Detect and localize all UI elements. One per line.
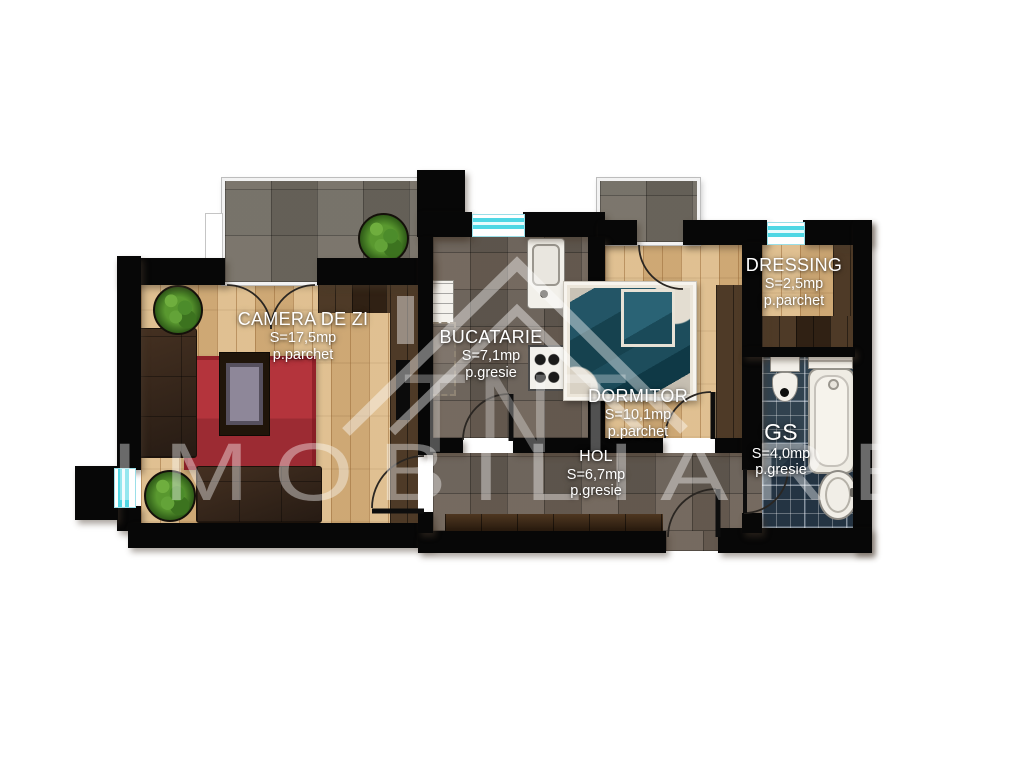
kitchen-window: [472, 214, 525, 237]
wall: [523, 212, 605, 237]
potted-plant: [144, 470, 196, 522]
room-name: DORMITOR: [588, 386, 688, 407]
wall: [418, 531, 666, 553]
room-flooring: p.parchet: [238, 347, 369, 364]
room-flooring: p.gresie: [752, 462, 810, 479]
wall: [742, 347, 855, 357]
sofa-left: [138, 328, 197, 458]
bathroom-sink-basin: [825, 477, 851, 513]
room-label-living: CAMERA DE ZI S=17,5mp p.parchet: [238, 309, 369, 364]
living-window: [114, 468, 136, 508]
room-area: S=7,1mp: [439, 348, 542, 365]
room-area: S=2,5mp: [746, 276, 842, 293]
potted-plant: [153, 285, 203, 335]
potted-plant: [358, 213, 409, 264]
sink-bowl: [532, 244, 560, 286]
room-area: S=17,5mp: [238, 330, 369, 347]
bed: [563, 281, 697, 401]
wall: [742, 513, 762, 533]
toilet: [770, 355, 800, 402]
entrance-threshold: [666, 531, 718, 551]
wall: [317, 258, 433, 285]
coffee-table: [219, 352, 270, 436]
bedroom-wardrobe: [716, 285, 742, 438]
room-flooring: p.parchet: [746, 293, 842, 310]
wall: [418, 512, 433, 533]
room-name: DRESSING: [746, 255, 842, 276]
wall: [128, 523, 433, 548]
wall: [75, 466, 118, 520]
toilet-drain: [780, 388, 789, 397]
sofa-bottom: [196, 466, 322, 523]
toilet-bowl: [772, 372, 798, 402]
wall: [417, 212, 472, 237]
room-flooring: p.gresie: [567, 483, 625, 500]
toilet-tank: [770, 355, 800, 372]
dressing-window: [767, 222, 805, 245]
bathtub: [808, 368, 855, 474]
room-area: S=10,1mp: [588, 407, 688, 424]
kitchen-sink: [527, 238, 565, 309]
room-label-kitchen: BUCATARIE S=7,1mp p.gresie: [439, 327, 542, 382]
faucet: [540, 290, 548, 298]
room-name: HOL: [567, 448, 625, 467]
coffee-table-top: [226, 363, 263, 425]
wall: [853, 220, 872, 553]
wall: [117, 256, 141, 470]
room-area: S=4,0mp: [752, 446, 810, 463]
floor-plan: TNT IMOBILIARE CAMERA DE ZI S=17,5mp p.p…: [0, 0, 1024, 768]
bed-pillow-area: [621, 289, 675, 347]
room-name: BUCATARIE: [439, 327, 542, 348]
room-flooring: p.parchet: [588, 424, 688, 441]
wall: [433, 438, 463, 453]
sliding-door-handle: [396, 360, 410, 420]
room-label-bathroom: GS S=4,0mp p.gresie: [752, 419, 810, 479]
balcony-divider: [205, 213, 223, 260]
wall: [418, 237, 433, 455]
room-area: S=6,7mp: [567, 467, 625, 484]
room-name: GS: [752, 419, 810, 446]
room-label-dressing: DRESSING S=2,5mp p.parchet: [746, 255, 842, 310]
room-name: CAMERA DE ZI: [238, 309, 369, 330]
room-flooring: p.gresie: [439, 365, 542, 382]
bathtub-drain: [828, 379, 839, 390]
dressing-wardrobe-bottom: [762, 316, 853, 347]
room-label-hall: HOL S=6,7mp p.gresie: [567, 448, 625, 500]
wall: [683, 220, 767, 245]
room-label-bedroom: DORMITOR S=10,1mp p.parchet: [588, 386, 688, 441]
